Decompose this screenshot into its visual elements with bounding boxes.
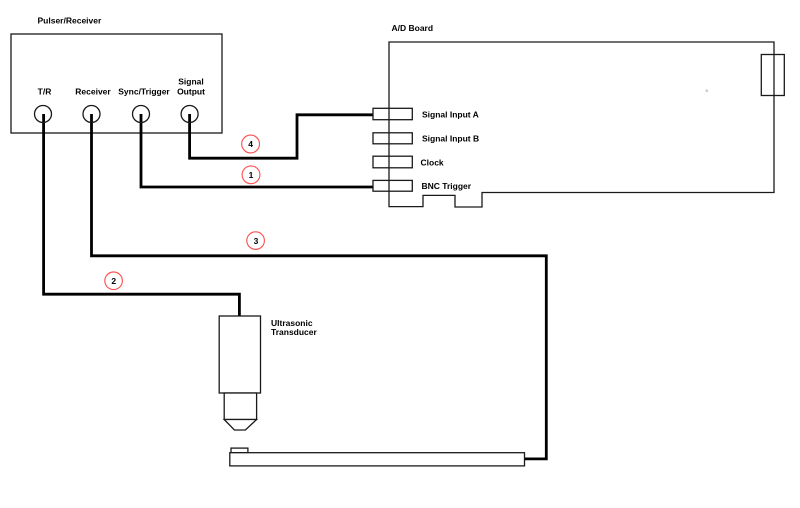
svg-text:Sync/Trigger: Sync/Trigger [118,87,170,97]
svg-text:A/D Board: A/D Board [392,23,434,33]
svg-text:Output: Output [177,87,205,97]
svg-text:BNC Trigger: BNC Trigger [422,181,472,191]
svg-text:Clock: Clock [421,157,444,167]
svg-text:Signal Input B: Signal Input B [422,134,479,144]
svg-text:Signal Input A: Signal Input A [422,109,479,119]
svg-text:Pulser/Receiver: Pulser/Receiver [38,15,102,25]
svg-text:2: 2 [111,276,116,286]
svg-text:1: 1 [249,170,254,180]
svg-text:Receiver: Receiver [75,87,111,97]
svg-text:Signal: Signal [178,77,204,87]
svg-text:3: 3 [254,236,259,246]
svg-text:4: 4 [248,139,253,149]
svg-text:T/R: T/R [38,87,52,97]
svg-text:Transducer: Transducer [271,327,318,337]
